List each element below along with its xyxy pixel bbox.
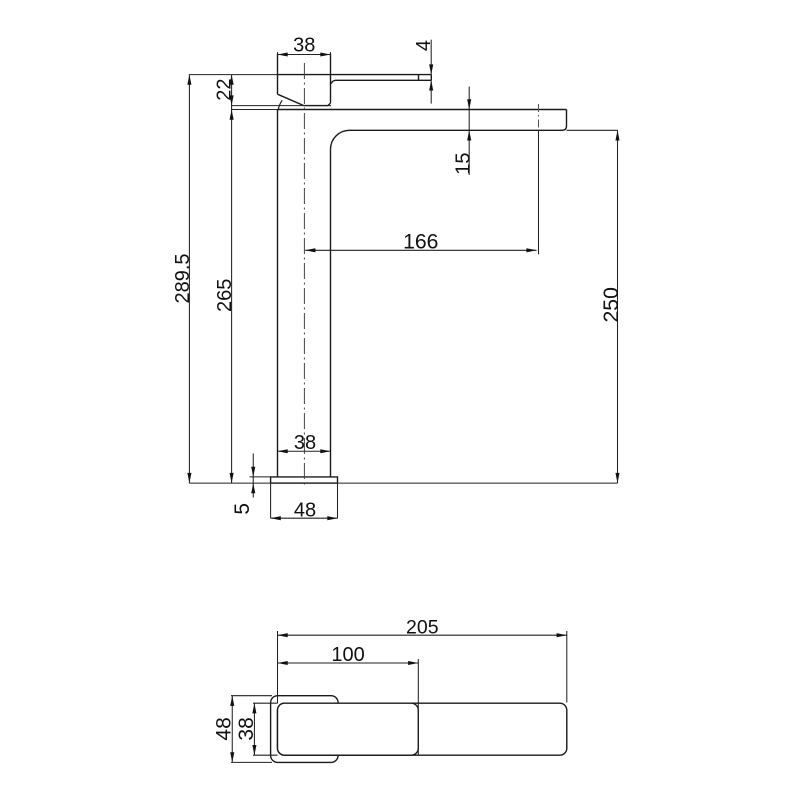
svg-text:166: 166 — [403, 231, 438, 254]
svg-text:48: 48 — [294, 499, 316, 521]
svg-text:15: 15 — [452, 152, 474, 174]
svg-text:38: 38 — [235, 717, 258, 740]
svg-text:100: 100 — [331, 644, 364, 666]
svg-text:38: 38 — [293, 35, 315, 57]
svg-text:265: 265 — [214, 279, 236, 312]
svg-text:5: 5 — [231, 503, 254, 515]
svg-text:205: 205 — [406, 616, 439, 638]
svg-text:4: 4 — [413, 40, 435, 51]
svg-text:22: 22 — [214, 78, 236, 100]
svg-text:250: 250 — [600, 287, 623, 322]
svg-text:48: 48 — [213, 717, 236, 740]
svg-text:289.5: 289.5 — [172, 253, 194, 303]
svg-text:38: 38 — [294, 432, 316, 454]
